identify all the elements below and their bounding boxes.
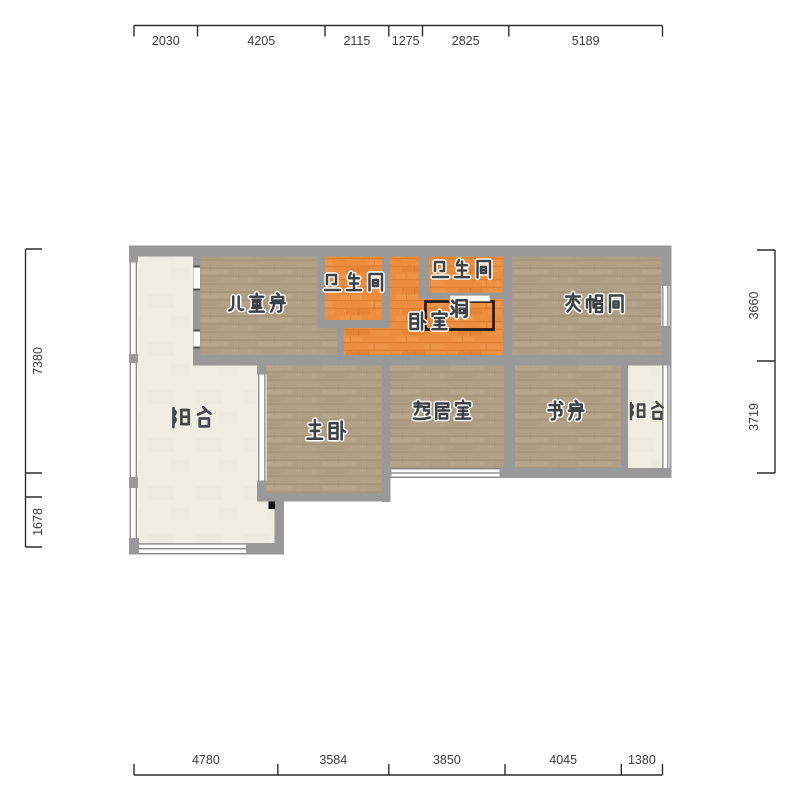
svg-text:3584: 3584: [319, 753, 347, 767]
svg-text:7380: 7380: [31, 347, 45, 375]
svg-text:1275: 1275: [392, 34, 420, 48]
svg-text:2115: 2115: [343, 34, 370, 48]
svg-text:3850: 3850: [433, 753, 461, 767]
svg-text:4205: 4205: [247, 34, 275, 48]
svg-text:5189: 5189: [572, 34, 600, 48]
svg-text:3719: 3719: [747, 403, 761, 431]
svg-text:4045: 4045: [549, 753, 577, 767]
svg-text:4780: 4780: [192, 753, 220, 767]
svg-text:1380: 1380: [628, 753, 656, 767]
svg-text:2825: 2825: [452, 34, 480, 48]
svg-text:1678: 1678: [31, 508, 45, 536]
svg-text:2030: 2030: [152, 34, 180, 48]
svg-text:3660: 3660: [747, 292, 761, 320]
